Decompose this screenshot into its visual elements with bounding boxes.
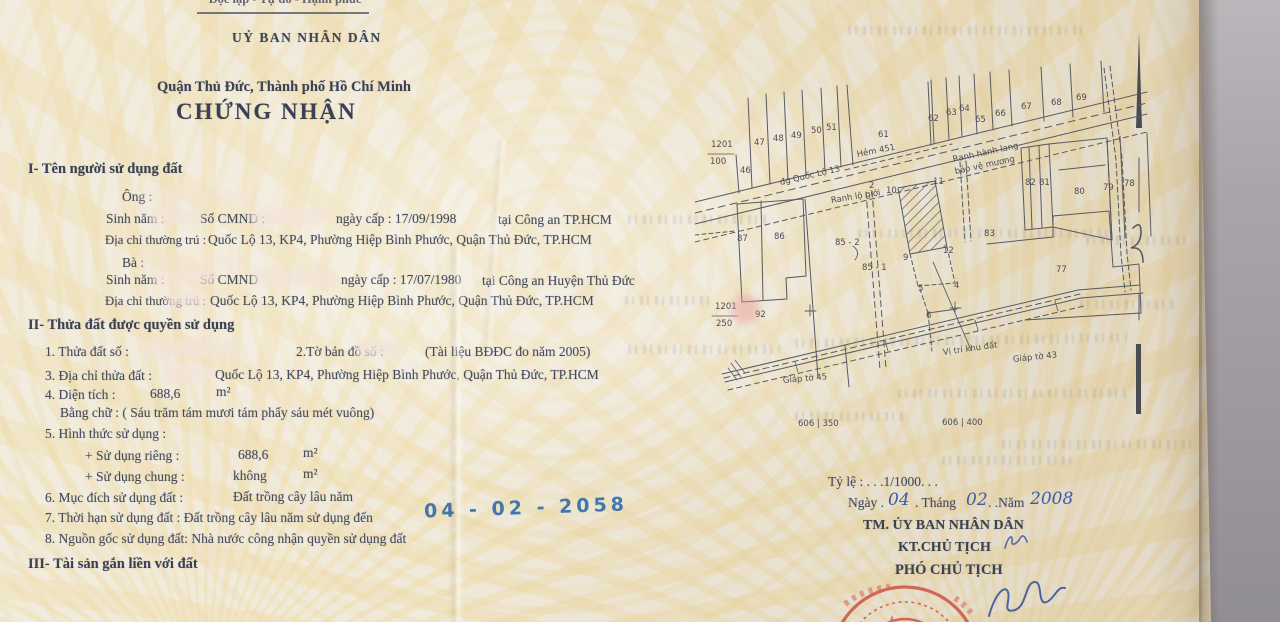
paper-crease [448,246,464,622]
map-scale-label: Tỷ lệ : . . .1/1000. . . [828,474,938,490]
area-in-words: Bằng chữ : ( Sáu trăm tám mươi tám phẩy … [60,405,374,421]
map-label: 10 [886,186,897,196]
vice-chairman-title: PHÓ CHỦ TỊCH [895,562,1003,579]
issuer-name: UỶ BAN NHÂN DÂN [232,30,382,46]
map-label: Giáp tờ 45 [783,372,828,386]
mrs-id-issue-place: tại Công an Huyện Thủ Đức [482,273,635,289]
map-label: 86 [774,232,785,242]
motto-underline [197,12,369,14]
common-use-unit: m² [303,466,318,482]
month-word: . Tháng [915,495,956,511]
map-label: 85 - 1 [862,263,887,273]
map-label: 51 [826,123,837,133]
bleed-through-text [858,229,1110,238]
origin-label: 8. Nguồn gốc sử dụng đất: Nhà nước công … [45,531,406,547]
map-label: 48 [773,134,784,144]
map-label: 79 [1103,183,1114,193]
map-label: 1201 [711,140,733,150]
certificate-document: Độc lập - Tự do - Hạnh phúc UỶ BAN NHÂN … [0,0,1212,622]
bleed-through-text [628,215,770,224]
map-label: 62 [928,114,939,124]
map-label: 46 [740,166,751,176]
map-label: 87 [737,234,748,244]
redacted-address-prefix [166,292,208,307]
use-form-label: 5. Hình thức sử dụng : [45,426,166,442]
certificate-title: CHỨNG NHẬN [176,99,357,125]
issuer-locality: Quận Thủ Đức, Thành phố Hồ Chí Minh [157,79,411,96]
handwritten-month: 02 [966,490,988,510]
map-label: Giáp tờ 43 [1012,350,1057,365]
section2-heading: II- Thửa đất được quyền sử dụng [28,317,234,334]
map-label: 68 [1051,98,1062,108]
mrs-id-issue-date: ngày cấp : 17/07/1980 [341,272,461,288]
handwritten-signature [985,580,1095,622]
map-label: 80 [1074,187,1085,197]
bleed-through-text [848,26,1086,35]
map-label: 49 [791,131,802,141]
bleed-through-text [795,412,907,421]
map-label: 65 [975,115,986,125]
on-behalf-line: TM. ỦY BAN NHÂN DÂN [863,518,1024,534]
common-use-value: không [233,468,267,484]
redacted-id-number [252,269,336,285]
map-label: đg Quốc Lộ 13 [779,164,841,188]
bleed-through-text [898,389,1130,398]
redacted-address-prefix [166,365,212,380]
map-label: 50 [811,126,822,136]
year-word: . .Năm [988,495,1024,511]
map-label: 61 [878,130,889,140]
map-label: 5 [918,284,923,294]
map-label: 606 | 400 [942,418,983,428]
section1-heading: I- Tên người sử dụng đất [28,161,183,178]
map-label: 47 [754,138,765,148]
section3-heading: III- Tài sản gắn liền với đất [28,556,198,573]
area-label: 4. Diện tích : [45,387,116,403]
redacted-map-sheet-number [356,341,400,357]
paper-edge-shading [1150,0,1202,622]
map-label: 12 [943,246,954,256]
date-word: Ngày . [848,495,884,511]
paper-edge-shadow [1199,0,1219,622]
redacted-name-area [140,254,250,269]
parcel-number-label: 1. Thửa đất số : [45,344,129,360]
private-use-unit: m² [303,445,318,461]
map-label: 77 [1056,265,1067,275]
common-use-label: + Sử dụng chung : [85,469,185,485]
mr-address-value: Quốc Lộ 13, KP4, Phường Hiệp Bình Phước,… [208,232,592,248]
redacted-birth-year [152,269,216,285]
map-label: 4 [954,281,959,291]
redacted-id-number [250,209,328,224]
purpose-label: 6. Mục đích sử dụng đất : [45,490,183,506]
private-use-value: 688,6 [238,447,268,463]
map-label: 78 [1124,179,1135,189]
official-seal-stamp [805,584,1015,622]
map-label: 64 [959,104,970,114]
map-label: 66 [995,109,1006,119]
bleed-through-text [625,296,715,305]
parcel-address-label: 3. Địa chỉ thửa đất : [45,368,152,384]
parcel-address-value: Quốc Lộ 13, KP4, Phường Hiệp Bình Phước,… [215,367,599,383]
handwritten-day: 04 [888,490,910,510]
map-label: 2 [869,181,874,191]
purpose-value: Đất trồng cây lâu năm [233,489,353,505]
area-unit: m² [216,384,231,400]
map-label: 82 [1025,178,1036,188]
map-label: 100 [710,157,726,167]
mrs-address-value: Quốc Lộ 13, KP4, Phường Hiệp Bình Phước,… [210,293,594,309]
map-label: 69 [1076,93,1087,103]
map-label: 250 [716,319,732,329]
clipped-motto-line: Độc lập - Tự do - Hạnh phúc [196,0,374,11]
duration-label: 7. Thời hạn sử dụng đất : Đất trồng cây … [45,510,373,526]
redacted-name-area [140,188,260,203]
redacted-parcel-number [146,341,242,357]
map-label: 9 [903,253,908,263]
pink-ink-smudge [731,294,759,324]
bleed-through-text [628,345,780,354]
map-label: Hẻm 451 [856,143,896,160]
handwritten-initial [1003,532,1029,552]
map-label: 81 [1039,178,1050,188]
bleed-through-text [942,456,1074,465]
deputy-for-line: KT.CHỦ TỊCH [898,540,991,556]
map-label: 67 [1021,102,1032,112]
map-label: 6 [926,311,931,321]
redacted-birth-year [150,209,202,224]
mr-address-label: Địa chỉ thường trú : [105,233,206,248]
map-label: 85 - 2 [835,238,860,248]
mr-id-issue-place: tại Công an TP.HCM [498,212,612,228]
map-label: 63 [946,108,957,118]
mr-id-issue-date: ngày cấp : 17/09/1998 [336,211,456,227]
private-use-label: + Sử dụng riêng : [85,448,179,464]
handwritten-year: 2008 [1030,489,1073,509]
area-value: 688,6 [150,386,180,402]
map-label: 11 [933,177,944,187]
